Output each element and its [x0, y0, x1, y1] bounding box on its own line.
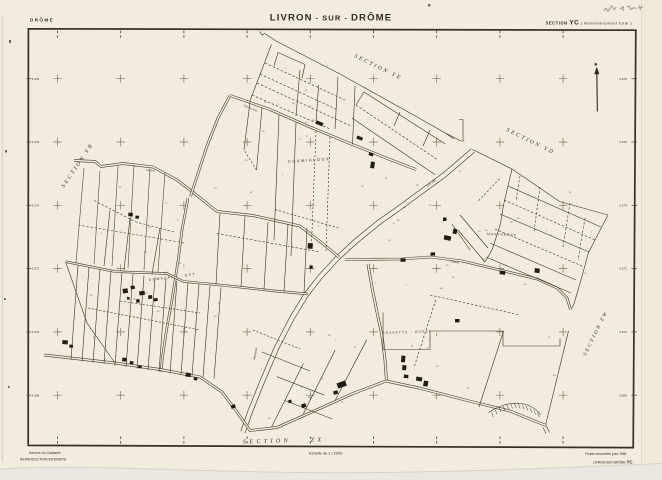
svg-text:3.278: 3.278 [32, 77, 40, 81]
svg-text:3.272: 3.272 [619, 267, 627, 271]
svg-text:SECTION YC ( Remembrement tota: SECTION YC ( Remembrement total ) [546, 20, 633, 27]
svg-text:REPRODUCTION INTERDITE: REPRODUCTION INTERDITE [20, 457, 67, 461]
svg-text:3.274: 3.274 [32, 203, 40, 207]
svg-text:3.268: 3.268 [32, 393, 40, 397]
svg-text:3.276: 3.276 [32, 140, 40, 144]
svg-text:3.270: 3.270 [619, 330, 627, 334]
svg-text:3.274: 3.274 [619, 203, 627, 207]
svg-text:3.268: 3.268 [619, 393, 627, 397]
svg-text:3.270: 3.270 [32, 330, 40, 334]
svg-text:DRÔME: DRÔME [30, 16, 54, 23]
svg-text:Feuille renouvelée pour 1968: Feuille renouvelée pour 1968 [585, 452, 627, 456]
svg-text:LIVRON - SUR - DRÔME: LIVRON - SUR - DRÔME [270, 12, 392, 24]
svg-text:3.276: 3.276 [619, 140, 627, 144]
svg-text:3.272: 3.272 [32, 267, 40, 271]
svg-text:3.278: 3.278 [619, 77, 627, 81]
svg-text:LIVRON-SUR-DRÔME YC: LIVRON-SUR-DRÔME YC [593, 459, 633, 464]
svg-text:Echelle de 1 / 2000: Echelle de 1 / 2000 [309, 451, 343, 456]
svg-text:Service du Cadastre: Service du Cadastre [29, 451, 61, 455]
svg-text:Chemin: Chemin [146, 168, 156, 172]
